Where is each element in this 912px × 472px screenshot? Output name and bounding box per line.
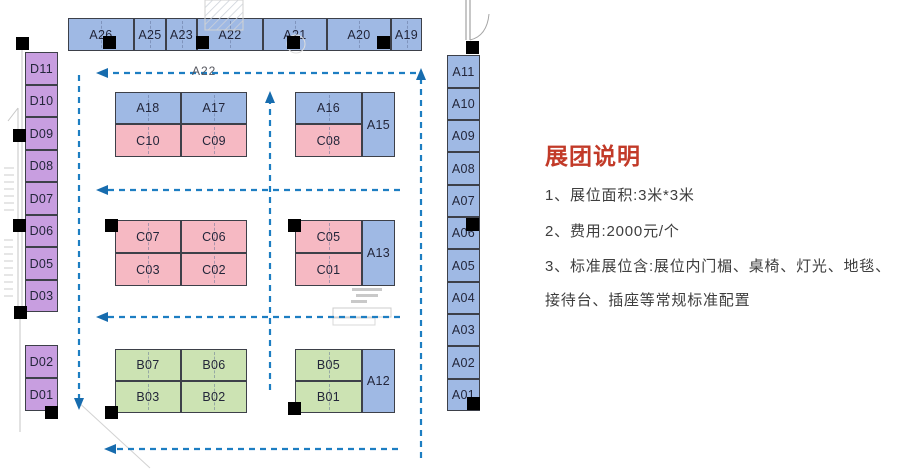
booth-A08: A08	[447, 152, 480, 185]
booth-A07: A07	[447, 185, 480, 217]
booth-D03: D03	[25, 280, 58, 312]
pillar-marker	[377, 36, 390, 49]
booth-A09: A09	[447, 120, 480, 152]
booth-label: A11	[452, 65, 474, 79]
booth-label: A02	[452, 356, 475, 370]
booth-A11: A11	[447, 55, 480, 88]
booth-C08: C08	[295, 124, 362, 157]
panel-title: 展团说明	[545, 137, 641, 171]
booth-A03: A03	[447, 314, 480, 346]
booth-C01: C01	[295, 253, 362, 286]
booth-label: D03	[30, 289, 54, 303]
booth-A10: A10	[447, 88, 480, 120]
flow-arrow-head	[416, 68, 426, 80]
booth-label: A03	[452, 323, 475, 337]
booth-D05: D05	[25, 247, 58, 280]
booth-label: C08	[317, 134, 341, 148]
booth-A17: A17	[181, 92, 247, 124]
booth-B02: B02	[181, 381, 247, 413]
booth-label: A25	[138, 28, 161, 42]
booth-label: A15	[367, 118, 390, 132]
booth-label: A07	[452, 194, 475, 208]
flow-arrow-head	[104, 444, 116, 454]
booth-label: A08	[452, 162, 475, 176]
booth-A25: A25	[134, 18, 166, 51]
booth-label: A05	[452, 259, 475, 273]
booth-label: A22	[218, 28, 241, 42]
pillar-marker	[103, 36, 116, 49]
booth-label: D05	[30, 257, 54, 271]
pillar-marker	[466, 41, 479, 54]
pillar-marker	[13, 129, 26, 142]
booth-A05: A05	[447, 249, 480, 282]
flow-arrow-head	[74, 398, 84, 410]
booth-C06: C06	[181, 220, 247, 253]
exhibit-info-panel: 展团说明 1、展位面积:3米*3米 2、费用:2000元/个 3、标准展位含:展…	[545, 0, 910, 472]
flow-arrow-head	[96, 185, 108, 195]
booth-A13: A13	[362, 220, 395, 286]
pillar-marker	[196, 36, 209, 49]
booth-label: C02	[202, 263, 226, 277]
booth-label: B02	[202, 390, 225, 404]
booth-label: A20	[347, 28, 370, 42]
booth-label: D07	[30, 192, 54, 206]
booth-D08: D08	[25, 150, 58, 182]
tiny-dimension-notes	[351, 288, 382, 303]
booth-label: B05	[317, 358, 340, 372]
pillar-marker	[466, 218, 479, 231]
booth-label: A13	[367, 246, 390, 260]
booth-label: A10	[452, 97, 475, 111]
booth-label: C09	[202, 134, 226, 148]
booth-A12: A12	[362, 349, 395, 413]
pillar-marker	[105, 406, 118, 419]
panel-note-3: 3、标准展位含:展位内门楣、桌椅、灯光、地毯、	[545, 255, 912, 276]
booth-A19: A19	[391, 18, 422, 51]
booth-label: D06	[30, 224, 54, 238]
booth-A04: A04	[447, 282, 480, 314]
booth-label: B06	[202, 358, 225, 372]
booth-label: C06	[202, 230, 226, 244]
flow-arrow-head	[96, 312, 108, 322]
booth-label: A17	[202, 101, 225, 115]
flow-arrow-head	[96, 68, 108, 78]
booth-label: D01	[30, 388, 54, 402]
booth-label: D08	[30, 159, 54, 173]
booth-A26: A26	[68, 18, 134, 51]
booth-label: D02	[30, 355, 54, 369]
booth-B03: B03	[115, 381, 181, 413]
booth-B06: B06	[181, 349, 247, 381]
pillar-marker	[288, 402, 301, 415]
booth-D11: D11	[25, 52, 58, 85]
booth-label: A18	[136, 101, 159, 115]
pillar-marker	[14, 306, 27, 319]
booth-label: D11	[30, 62, 53, 76]
booth-D10: D10	[25, 85, 58, 117]
booth-label: D09	[30, 127, 54, 141]
booth-C07: C07	[115, 220, 181, 253]
booth-C03: C03	[115, 253, 181, 286]
booth-A02: A02	[447, 346, 480, 379]
booth-D02: D02	[25, 345, 58, 378]
booth-label: A12	[367, 374, 390, 388]
booth-label: B03	[136, 390, 159, 404]
pillar-marker	[288, 219, 301, 232]
booth-label: A16	[317, 101, 340, 115]
booth-A18: A18	[115, 92, 181, 124]
booth-C10: C10	[115, 124, 181, 157]
booth-label: D10	[30, 94, 54, 108]
booth-label: B07	[136, 358, 159, 372]
booth-B01: B01	[295, 381, 362, 413]
flow-arrow-head	[265, 91, 275, 103]
booth-label: C03	[136, 263, 160, 277]
booth-A16: A16	[295, 92, 362, 124]
booth-C05: C05	[295, 220, 362, 253]
pillar-marker	[467, 397, 480, 410]
booth-C02: C02	[181, 253, 247, 286]
booth-A15: A15	[362, 92, 395, 157]
booth-label: C10	[136, 134, 160, 148]
exhibition-floorplan-page: A22	[0, 0, 912, 472]
booth-label: C07	[136, 230, 160, 244]
panel-note-2: 2、费用:2000元/个	[545, 220, 912, 241]
flow-route-label: A22	[192, 64, 216, 78]
booth-label: A19	[395, 28, 418, 42]
booth-C09: C09	[181, 124, 247, 157]
panel-note-3-cont: 接待台、插座等常规标准配置	[545, 289, 912, 310]
booth-A23: A23	[166, 18, 197, 51]
pillar-marker	[105, 219, 118, 232]
booth-D09: D09	[25, 117, 58, 150]
pillar-marker	[45, 406, 58, 419]
panel-note-1: 1、展位面积:3米*3米	[545, 184, 912, 205]
booth-D06: D06	[25, 215, 58, 247]
booth-D07: D07	[25, 182, 58, 215]
booth-label: A23	[170, 28, 193, 42]
booth-B07: B07	[115, 349, 181, 381]
booth-label: A09	[452, 129, 475, 143]
pillar-marker	[13, 219, 26, 232]
pillar-marker	[287, 36, 300, 49]
booth-label: C01	[317, 263, 341, 277]
booth-B05: B05	[295, 349, 362, 381]
booth-label: B01	[317, 390, 340, 404]
booth-label: A04	[452, 291, 475, 305]
pillar-marker	[16, 37, 29, 50]
booth-label: C05	[317, 230, 341, 244]
floorplan-map: A22	[0, 0, 510, 472]
